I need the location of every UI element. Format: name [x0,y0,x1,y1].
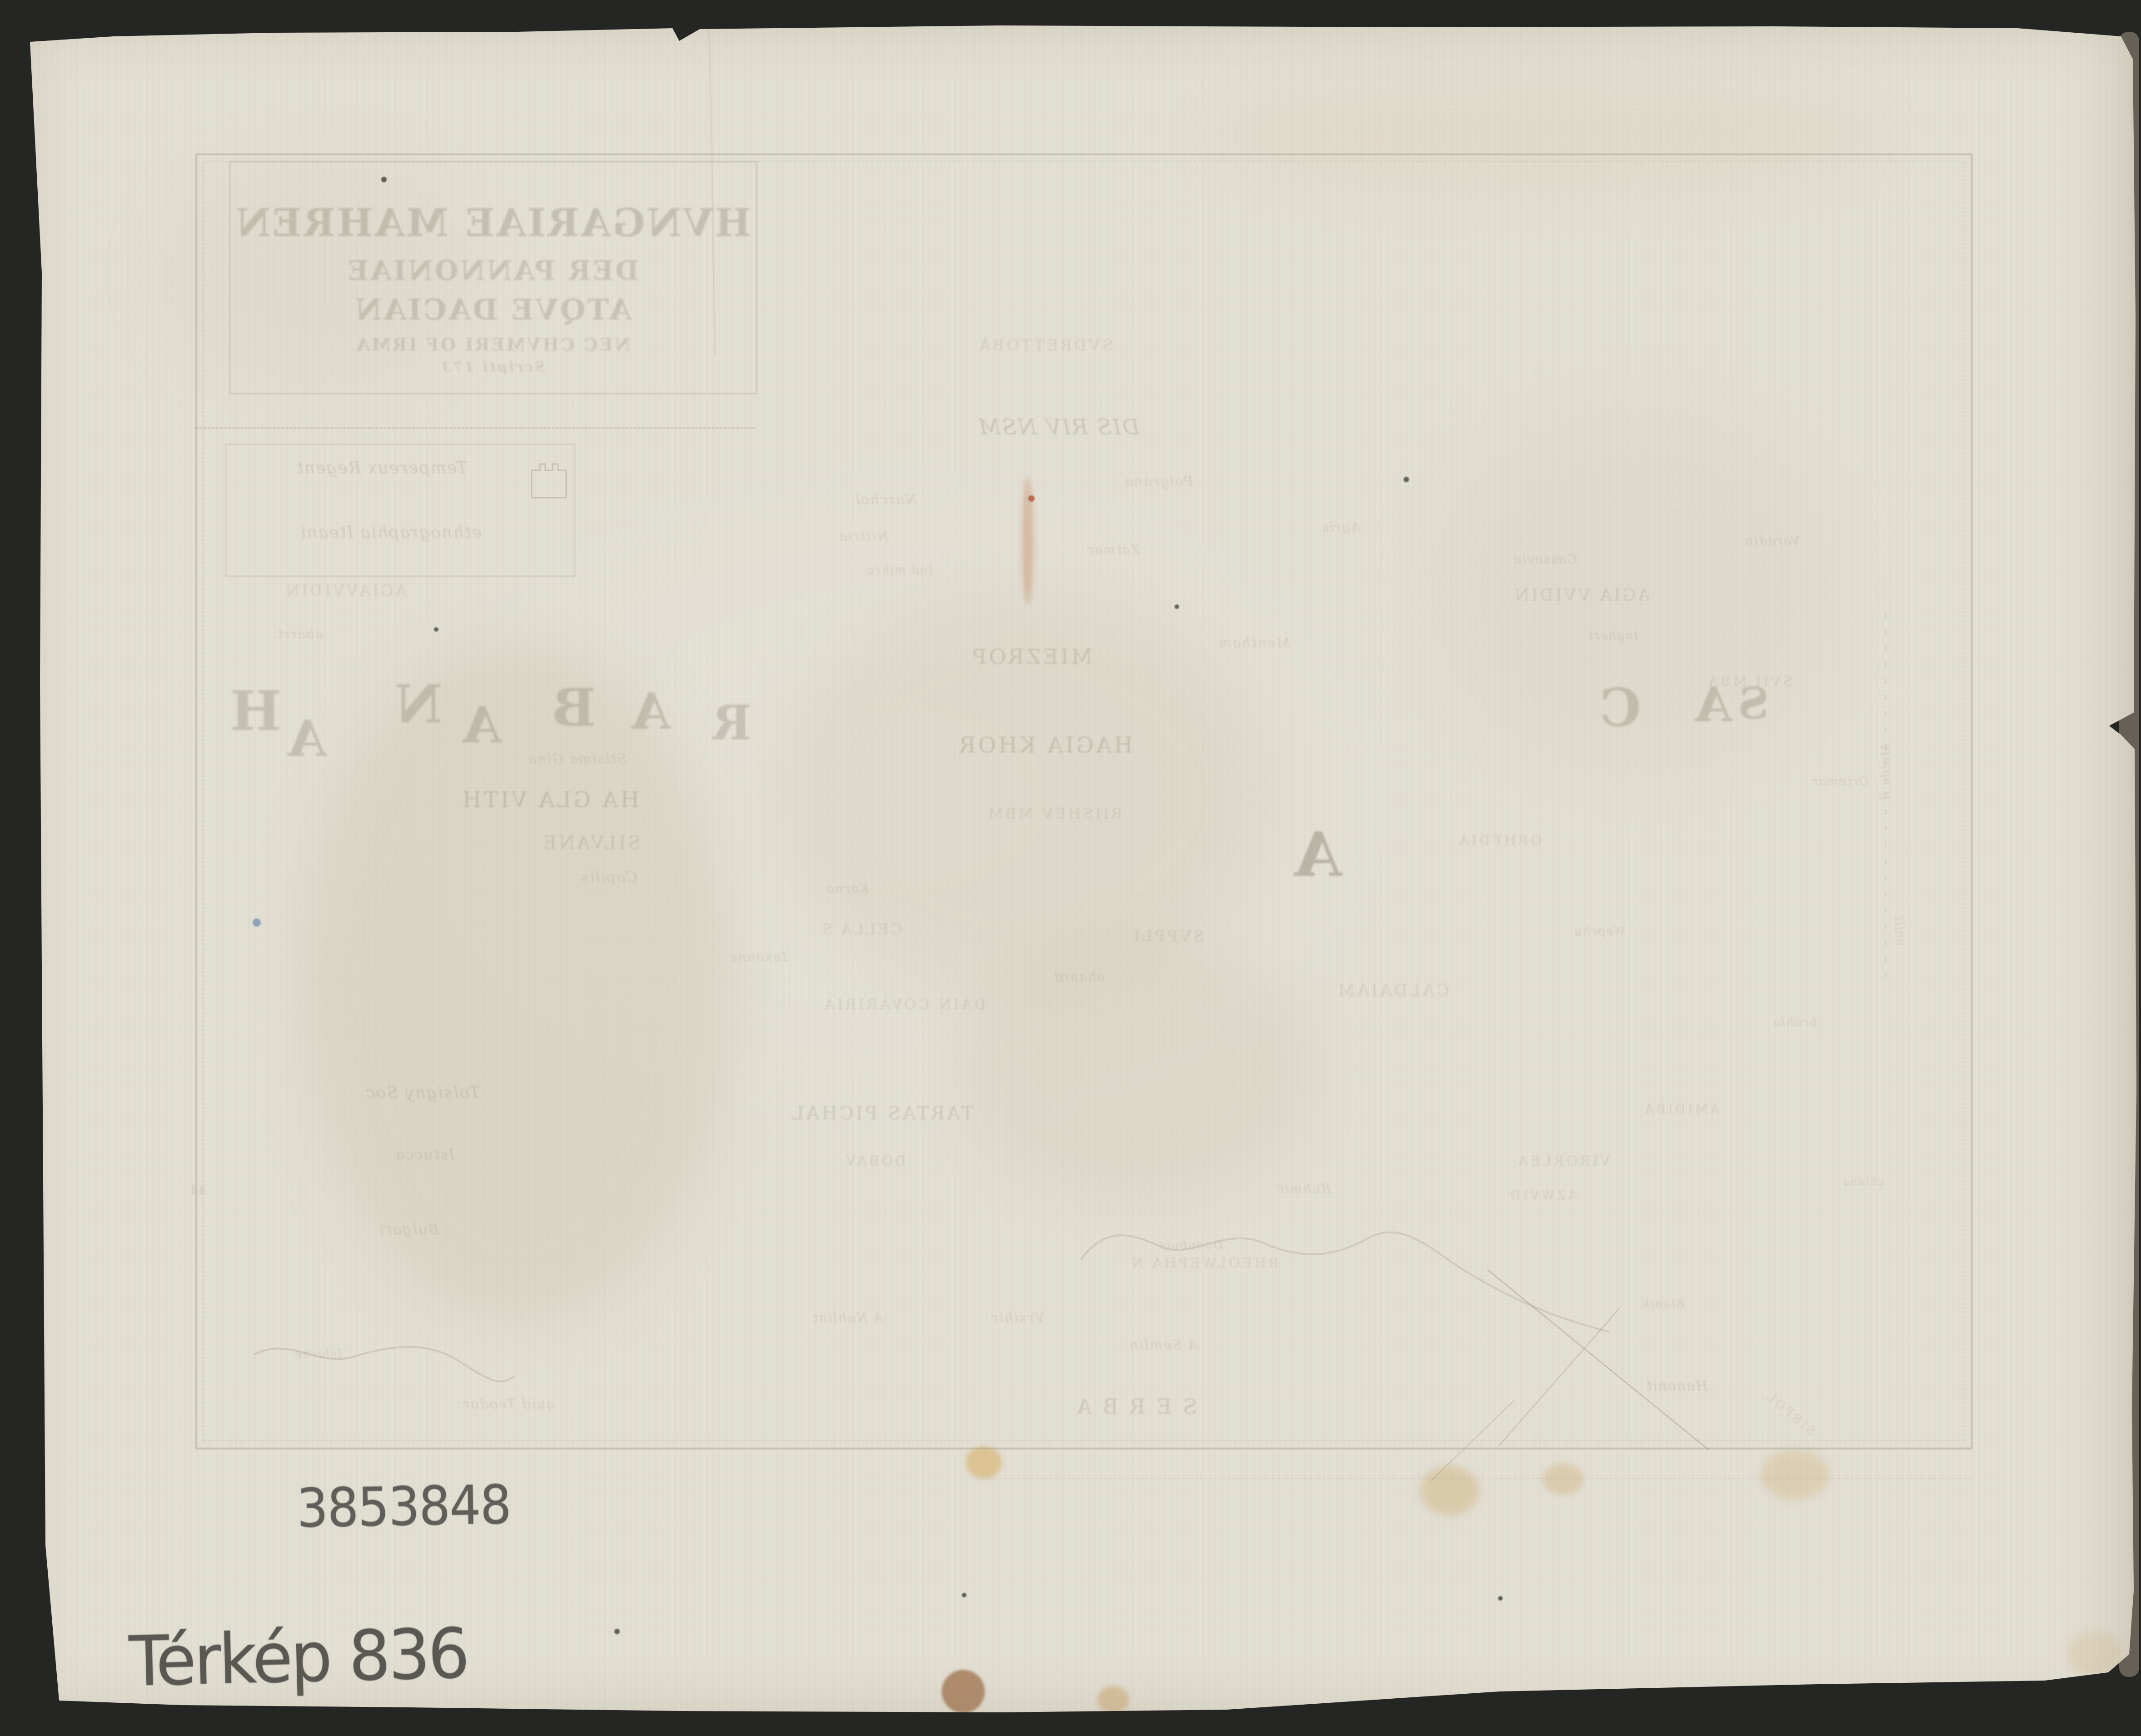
ghost-title-line: ATQVE DACIAN [354,293,632,327]
ghost-title-line: NEC CHVMERI OF IRMA [355,334,631,355]
paper-speck [381,177,387,182]
ghost-label: ORHFDIA [1457,833,1542,849]
ghost-letter: A [287,709,326,768]
ghost-label: SILVANE [541,833,640,853]
ghost-label: HA GLA VITH [460,787,639,813]
ghost-label: Capilis [580,868,637,886]
ghost-title-line: Scripti 173 [440,359,545,375]
paper-speck [434,627,438,632]
ghost-label: SIRFOL [1763,1388,1818,1438]
ghost-label: A Nuhlint [812,1311,883,1326]
ghost-label: AGIA VVIDIN [1513,586,1650,605]
ghost-label: Vrsihir [991,1310,1045,1326]
ghost-title-line: DER PANNONIAE [346,255,639,287]
ghost-river-west [254,1347,513,1382]
ghost-place-labels: Tempereux Regentethnographia IteaniSVDRE… [0,0,2141,1736]
ghost-label: Tempereux Regent [296,459,468,478]
ghost-label: A Semlin [1129,1337,1198,1353]
ghost-label: DAIN COVARIRIA [822,996,986,1013]
stain [966,1447,1002,1478]
ghost-label: Korna [826,881,869,896]
stain [1097,1686,1129,1713]
ghost-label: S E R B A [1075,1394,1197,1419]
pencil-accession-number: 3853848 [296,1473,511,1540]
ghost-letter: A [1694,676,1732,733]
ghost-label: Varadin [1744,534,1800,549]
scanner-bed-background: HVNGARIAE MAHRENDER PANNONIAEATQVE DACIA… [0,0,2141,1736]
ghost-linework [0,0,2141,1736]
ghost-label: SVPPLI [1131,927,1204,945]
ghost-label: Bulgari [378,1221,439,1238]
ghost-label: AMIDIBA [1643,1102,1719,1117]
ghost-region-letters: HANABARACAS [0,0,2141,1736]
speck-layer [0,0,2141,1736]
paper-speck [1028,495,1035,502]
ghost-title-cartouche-box [229,161,757,394]
ghost-label: Danubuis [1159,1238,1223,1252]
ghost-label: Blanik [1641,1297,1685,1311]
ghost-label: Inghert [1588,629,1639,643]
ghost-label: Ind mihra [866,564,933,577]
stain [1431,409,1840,773]
ghost-label: AGIAVVIDIN [284,582,407,600]
ghost-label: Stlsima Glna [528,751,627,767]
ghost-label: DIS RIV NSM [978,414,1140,440]
ghost-label: Tolsigny Soc [365,1084,480,1102]
stain [1420,1466,1479,1516]
ghost-map-neatline [195,154,1972,1449]
ghost-river-danube [1081,1232,1608,1332]
ghost-rule-line-bottom [977,1478,1972,1479]
ghost-label: CALDAIAM [1336,982,1449,1000]
ghost-label: ethnographia Iteani [300,524,482,542]
castle-icon [532,464,566,498]
ghost-label: RIISHEV MBM [986,805,1122,822]
scratch-line-1 [1488,1270,1708,1450]
ghost-label: Taxonne [729,949,789,964]
map-sheet-verso: HVNGARIAE MAHRENDER PANNONIAEATQVE DACIA… [0,0,2141,1736]
ghost-letter: A [462,696,501,754]
ghost-label: Hanonit [1646,1378,1708,1394]
ghost-label: Mentham [1218,635,1290,651]
ghost-letter: H [229,679,281,743]
stain [1761,1450,1829,1500]
ghost-label: Polgrana [1124,474,1193,490]
ghost-label: ohanrd [1054,970,1105,985]
paper-speck [962,1593,966,1597]
ghost-label: Zatmar [1087,543,1140,558]
ghost-rule-line [195,427,755,429]
scratch-line-2 [1499,1308,1620,1445]
ghost-label: SVII MBA [1706,674,1792,690]
ghost-label: MIEZROP [970,644,1092,669]
ghost-label: Weprhu [1573,925,1626,938]
ghost-letter: A [1294,818,1342,891]
scratch-line-3 [1431,1401,1514,1481]
stain [1204,77,1886,195]
paper-speck [1498,1596,1503,1601]
ghost-label: quid Teodor [463,1397,555,1412]
paper-speck [614,1629,620,1634]
stain [954,932,1318,1204]
stain [159,159,477,386]
ghost-legend-box [225,444,575,577]
ghost-title-line: HVNGARIAE MAHREN [234,200,751,245]
paper-speck [1404,477,1409,482]
stain [942,1670,985,1713]
ghost-label: Nittria [839,529,888,544]
ghost-label: Istucca [395,1146,454,1163]
ghost-label: Cassovia [1513,552,1577,567]
paper-speck [253,918,261,927]
ghost-label: CELLA S [820,921,902,938]
ghost-label: DOBAV [843,1153,906,1169]
paper-speck [1175,604,1179,609]
ghost-letter: S [1737,678,1769,729]
ghost-label: VIRORLEA [1516,1153,1610,1169]
ghost-map-neatline-inner [203,161,1964,1441]
ghost-label: Iflun [1893,917,1906,947]
ghost-letter: B [551,678,596,739]
stain-layer [0,0,2141,1736]
pencil-collection-number: Térkép 836 [128,1613,468,1702]
ghost-label: abarrt [277,627,323,642]
ghost-letter: N [393,674,442,735]
ghost-label: Ruhmir [1277,1181,1331,1196]
ghost-title-block: HVNGARIAE MAHRENDER PANNONIAEATQVE DACIA… [0,0,2141,1736]
ghost-label: chlana [1842,1175,1884,1188]
ghost-label: RHEOLWEPHA N [1129,1256,1279,1272]
stain [1543,1463,1583,1495]
ghost-label: AZWVID [1508,1188,1577,1203]
ghost-letter: R [711,694,752,751]
ghost-label: Islarne [294,1347,342,1361]
stain [1022,477,1034,604]
ghost-label: Molda fl [1879,744,1892,801]
ghost-label: Nurchol [855,492,917,508]
ghost-label: SVDRETTOBA [977,336,1113,354]
ghost-label: Agria [1320,520,1360,535]
ghost-label: TARTAS PICHAL [790,1103,974,1124]
stain [772,591,1272,1000]
ghost-label: HAGIA KHOR [957,733,1133,758]
stain [302,641,734,1322]
ghost-label: 44 [189,1184,206,1197]
ghost-label: Ortemar [1812,775,1869,788]
ghost-letter: C [1598,678,1641,739]
ghost-label: bruhla [1773,1016,1817,1029]
stain [2067,1631,2122,1677]
crease-line [709,28,715,354]
ghost-letter: A [631,682,670,741]
